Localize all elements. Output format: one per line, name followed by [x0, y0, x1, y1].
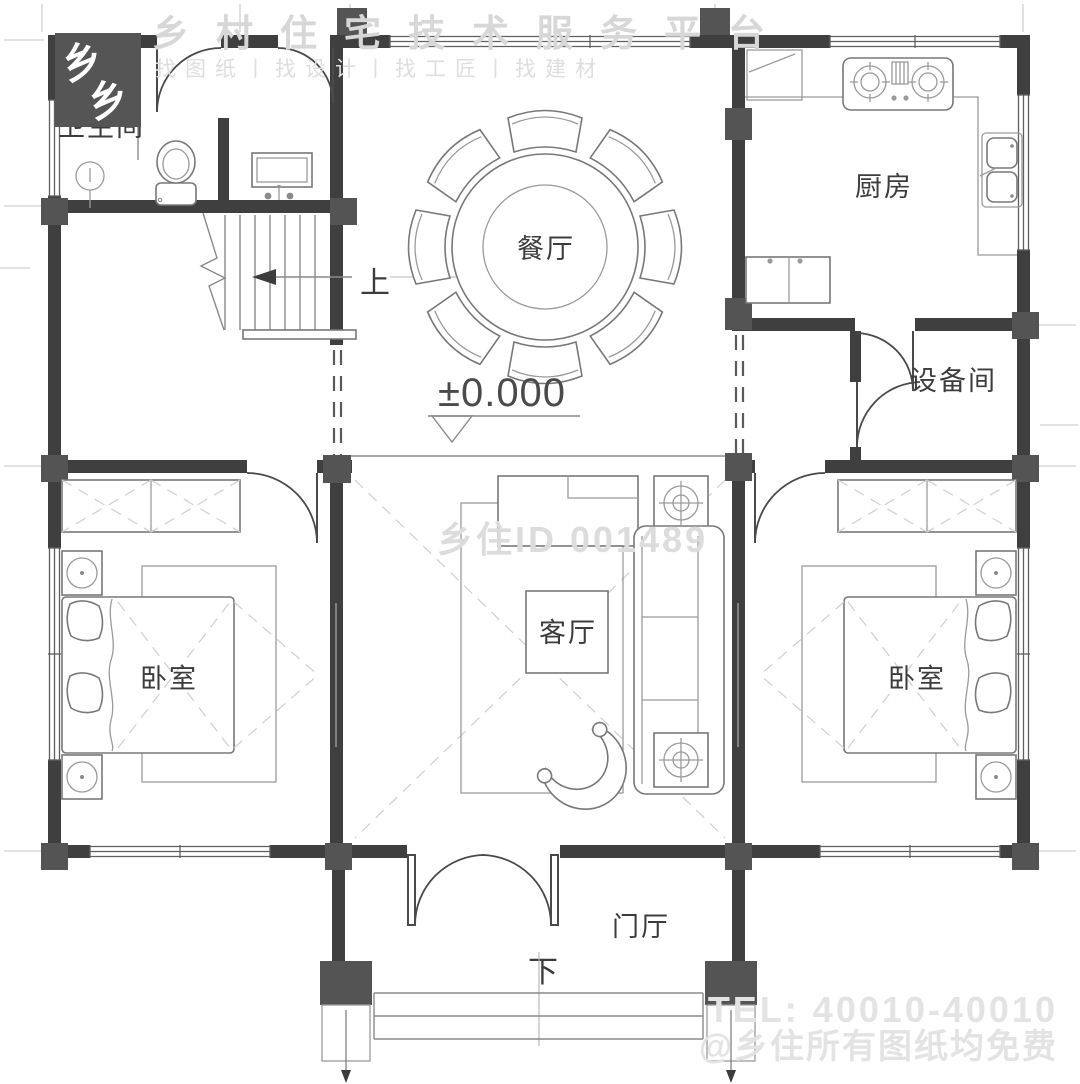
- side-table-bottom: [654, 733, 708, 787]
- dining-area: 餐厅: [409, 111, 682, 384]
- wardrobe-left: [62, 480, 240, 532]
- plan-id-watermark: 乡住ID 001489: [437, 519, 708, 560]
- bedroom-left-door: [247, 473, 317, 543]
- floor-plan-page: 上 餐厅 ±0.000: [0, 0, 1080, 1084]
- window-bedroom-right-bottom: [820, 845, 1000, 858]
- window-bedroom-left: [48, 548, 61, 760]
- bedroom-left: 卧室: [62, 480, 318, 799]
- window-kitchen-top: [830, 35, 1000, 48]
- living-label: 客厅: [539, 618, 597, 648]
- kitchen-label: 厨房: [855, 172, 913, 202]
- stove: [843, 58, 953, 110]
- entrance-double-door: [408, 855, 558, 925]
- platform-tagline-watermark: 找图纸丨找设计丨找工匠丨找建材: [155, 58, 605, 81]
- equipment-label: 设备间: [910, 366, 997, 396]
- bedroom-right: 卧室: [760, 480, 1016, 799]
- armchair: [535, 720, 645, 828]
- nightstand-right-top: [976, 551, 1016, 595]
- kitchen-sink: [980, 133, 1022, 207]
- foyer-label: 门厅: [612, 912, 670, 942]
- bedroom-right-label: 卧室: [888, 664, 946, 694]
- floor-plan-drawing: 上 餐厅 ±0.000: [0, 0, 1080, 1084]
- window-bedroom-right: [1017, 548, 1030, 760]
- dining-label: 餐厅: [517, 234, 575, 264]
- coffee-table: 客厅: [526, 591, 608, 673]
- kitchen-cabinet: [746, 257, 830, 303]
- stairs-up-label: 上: [360, 267, 390, 300]
- equipment-room: 设备间: [910, 366, 997, 396]
- foyer: 门厅 下: [320, 912, 757, 1083]
- kitchen-door: [857, 331, 913, 391]
- nightstand-left-top: [62, 551, 102, 595]
- nightstand-right-bottom: [976, 755, 1016, 799]
- pillow: [67, 601, 102, 641]
- toilet: [156, 141, 196, 205]
- bedroom-left-label: 卧室: [140, 664, 198, 694]
- pillow: [976, 673, 1011, 713]
- elevation-value: ±0.000: [438, 371, 566, 415]
- steps-down-label: 下: [528, 956, 558, 989]
- bedroom-right-door: [755, 473, 825, 543]
- free-notice-watermark: @乡住所有图纸均免费: [699, 1028, 1058, 1066]
- stair-break-line: [201, 213, 225, 330]
- elevation-marker: ±0.000: [428, 371, 580, 442]
- vanity-sink: [252, 153, 312, 200]
- window-kitchen: [1017, 95, 1030, 250]
- wardrobe-right: [838, 480, 1016, 532]
- flue-shaft: [747, 50, 802, 100]
- pillow: [67, 673, 102, 713]
- kitchen: 厨房: [745, 50, 1022, 303]
- window-bedroom-left-bottom: [90, 845, 270, 858]
- platform-name-watermark: 乡村住宅技术服务平台: [152, 12, 792, 54]
- tel-watermark: TEL: 40010-40010: [708, 989, 1058, 1030]
- nightstand-left-bottom: [62, 755, 102, 799]
- pillow: [976, 601, 1011, 641]
- porch-column-left: [320, 961, 372, 1005]
